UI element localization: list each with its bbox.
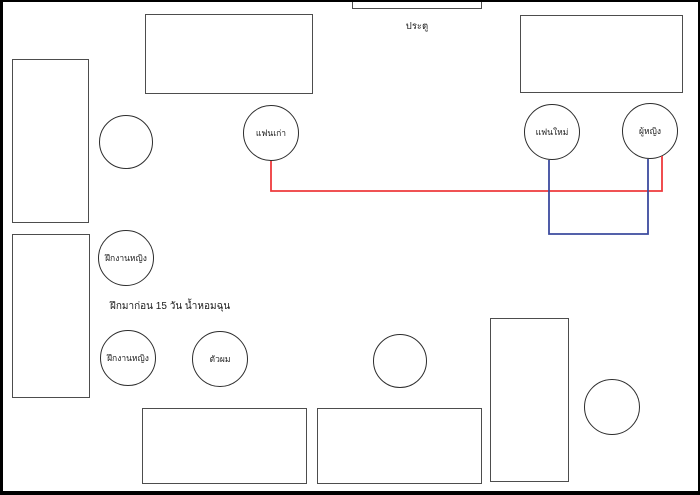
seating-plan-diagram: ประตู แฟนเก่า แฟนใหม่ ผู้หญิง ฝึกงานหญิง…	[0, 0, 700, 495]
red-connection-line	[271, 156, 662, 191]
seat-label-new-girlfriend: แฟนใหม่	[536, 128, 569, 137]
seat-label-ex-girlfriend: แฟนเก่า	[256, 129, 286, 138]
annotation-note: ฝึกมาก่อน 15 วัน น้ำหอมฉุน	[110, 299, 230, 314]
seat-ex-girlfriend: แฟนเก่า	[243, 105, 299, 161]
seat-label-woman: ผู้หญิง	[639, 127, 661, 136]
door-label: ประตู	[352, 19, 482, 34]
seat-new-girlfriend: แฟนใหม่	[524, 104, 580, 160]
table-bottom-right-vertical	[490, 318, 569, 482]
seat-woman: ผู้หญิง	[622, 103, 678, 159]
seat-intern-lower: ฝึกงานหญิง	[100, 330, 156, 386]
table-left-upper	[12, 59, 89, 223]
seat-unlabeled-bottom-right	[584, 379, 640, 435]
seat-label-intern-upper: ฝึกงานหญิง	[105, 254, 147, 263]
seat-intern-upper: ฝึกงานหญิง	[98, 230, 154, 286]
door-rect	[352, 0, 482, 9]
table-top-right	[520, 15, 683, 93]
seat-unlabeled-bottom-middle	[373, 334, 427, 388]
seat-label-intern-lower: ฝึกงานหญิง	[107, 354, 149, 363]
blue-connection-line	[549, 159, 648, 234]
table-bottom-middle	[317, 408, 482, 484]
seat-label-me: ตัวผม	[210, 355, 231, 364]
table-top-left	[145, 14, 313, 94]
table-bottom-left	[142, 408, 307, 484]
seat-unlabeled-top-left	[99, 115, 153, 169]
seat-me: ตัวผม	[192, 331, 248, 387]
table-left-lower	[12, 234, 90, 398]
